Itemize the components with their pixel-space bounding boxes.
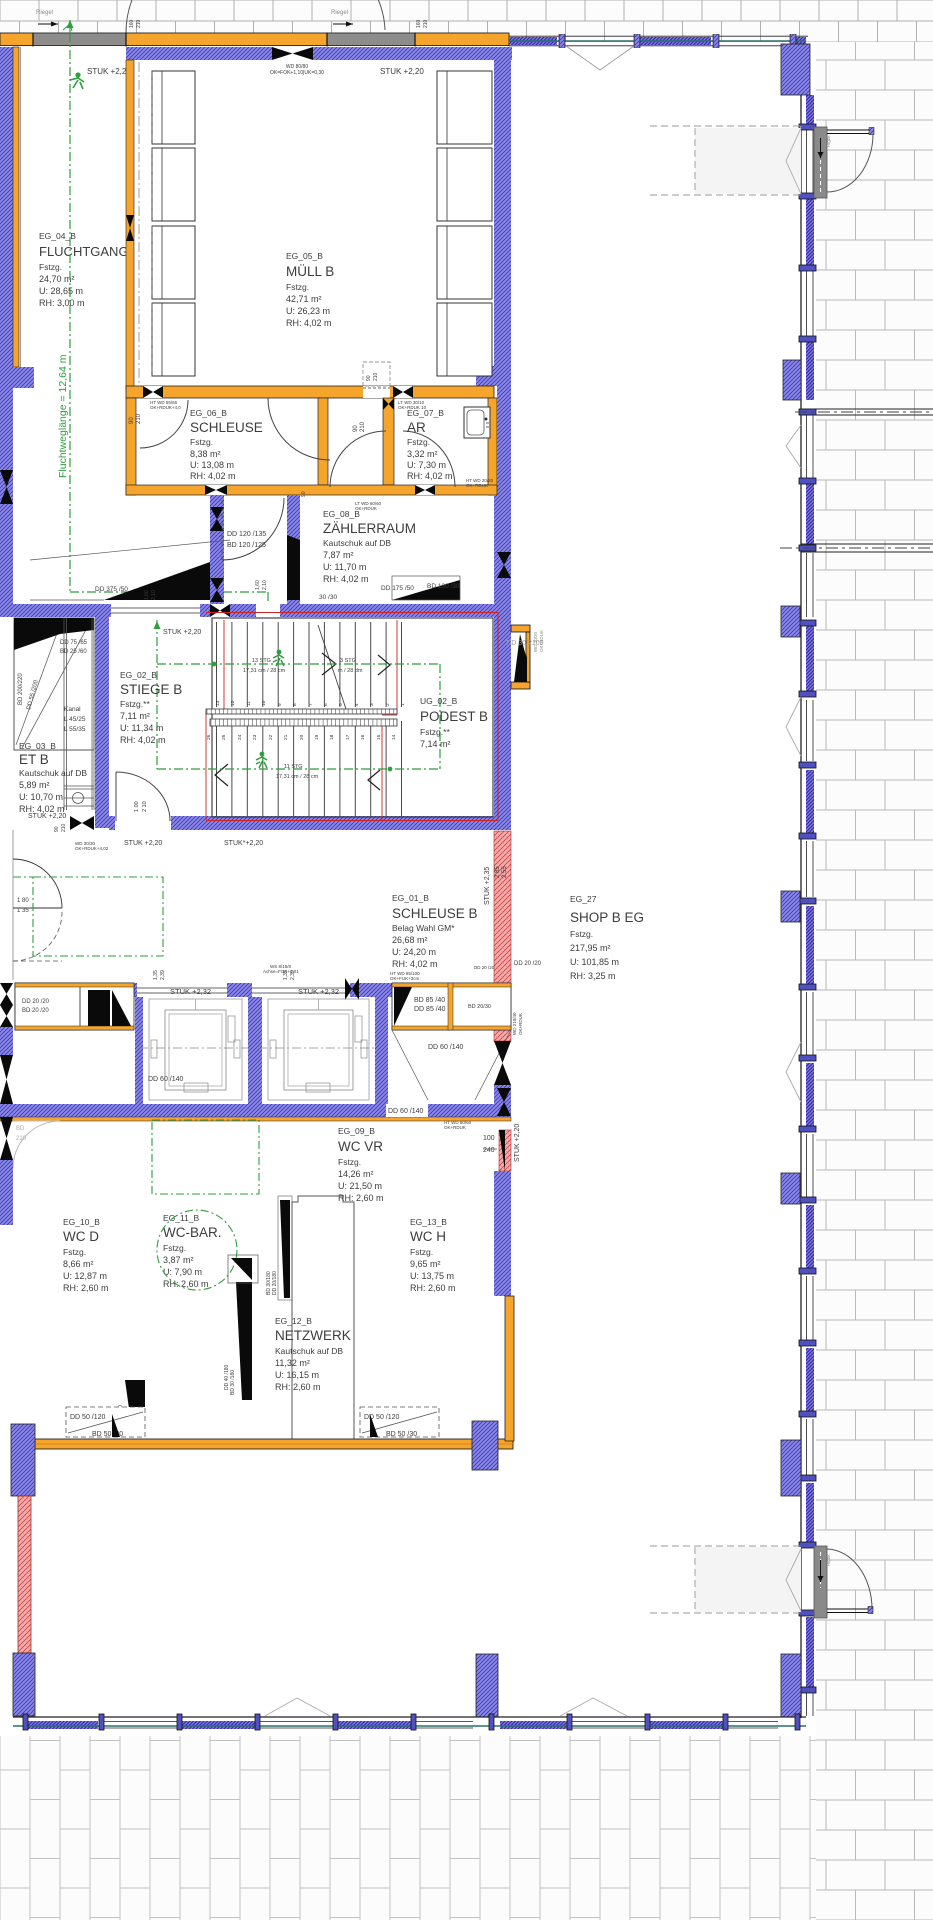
svg-text:Riegel: Riegel [331, 10, 348, 16]
svg-text:Kautschuk auf DB: Kautschuk auf DB [19, 768, 87, 778]
svg-text:WD 30/20: WD 30/20 [533, 631, 538, 652]
svg-text:210: 210 [373, 372, 379, 381]
svg-text:WD 210/40: WD 210/40 [512, 1012, 517, 1035]
svg-text:SHOP B EG: SHOP B EG [570, 910, 644, 925]
svg-text:RH: 4,02 m: RH: 4,02 m [407, 471, 453, 481]
svg-text:U: 24,20 m: U: 24,20 m [392, 947, 436, 957]
svg-text:7,11 m²: 7,11 m² [120, 711, 150, 721]
svg-text:RH: 4,02 m: RH: 4,02 m [19, 804, 65, 814]
svg-text:WC-BAR.: WC-BAR. [163, 1225, 222, 1240]
svg-text:1 80: 1 80 [17, 898, 29, 904]
svg-text:U: 101,85 m: U: 101,85 m [570, 957, 619, 967]
svg-text:17,31 cm / 28 cm: 17,31 cm / 28 cm [243, 668, 286, 674]
svg-text:210: 210 [16, 1136, 27, 1142]
svg-text:11: 11 [246, 701, 252, 706]
svg-text:RH: 4,02 m: RH: 4,02 m [323, 574, 369, 584]
svg-text:2 85: 2 85 [495, 866, 501, 878]
svg-text:DD 50 /120: DD 50 /120 [70, 1414, 106, 1421]
svg-text:RH: 4,02 m: RH: 4,02 m [286, 318, 332, 328]
svg-text:STUK +2,20: STUK +2,20 [163, 629, 201, 636]
svg-text:Kautschuk auf DB: Kautschuk auf DB [323, 538, 391, 548]
svg-text:BD 20 /20: BD 20 /20 [22, 1008, 49, 1014]
svg-text:2 10: 2 10 [142, 801, 148, 812]
svg-text:12: 12 [230, 700, 236, 706]
svg-text:DD 120 /135: DD 120 /135 [227, 531, 266, 538]
svg-text:26,68 m²: 26,68 m² [392, 935, 428, 945]
svg-text:WC D: WC D [63, 1229, 99, 1244]
svg-text:RH: 2,60 m: RH: 2,60 m [410, 1283, 456, 1293]
svg-text:U: 11,34 m: U: 11,34 m [120, 723, 163, 733]
svg-text:Fstzg.**: Fstzg.** [120, 699, 150, 709]
svg-text:14,26 m²: 14,26 m² [338, 1169, 374, 1179]
svg-text:210: 210 [136, 19, 142, 28]
svg-text:100: 100 [483, 1135, 495, 1142]
svg-text:18: 18 [329, 734, 335, 740]
svg-text:90: 90 [54, 826, 60, 832]
svg-text:U: 21,50 m: U: 21,50 m [338, 1181, 382, 1191]
svg-text:13: 13 [215, 700, 221, 706]
svg-text:U: 11,70 m: U: 11,70 m [323, 562, 366, 572]
svg-text:EG_27: EG_27 [570, 894, 597, 904]
svg-text:Fstzg.: Fstzg. [39, 262, 62, 272]
svg-text:PODEST B: PODEST B [420, 709, 488, 724]
svg-text:1 35: 1 35 [17, 908, 29, 914]
svg-text:22: 22 [268, 734, 274, 740]
svg-text:OK+RDUK+4,02: OK+RDUK+4,02 [75, 846, 109, 851]
svg-text:DD 20 /20: DD 20 /20 [514, 961, 542, 967]
svg-text:Fstzg.: Fstzg. [163, 1243, 186, 1253]
svg-text:24: 24 [237, 734, 243, 740]
svg-text:210: 210 [360, 421, 366, 432]
svg-text:23: 23 [252, 734, 258, 740]
svg-text:EG_13_B: EG_13_B [410, 1217, 447, 1227]
svg-text:U: 13,75 m: U: 13,75 m [410, 1271, 454, 1281]
svg-text:STUK +2,20: STUK +2,20 [380, 67, 424, 76]
svg-text:90: 90 [301, 491, 307, 497]
svg-text:3: 3 [369, 703, 375, 706]
svg-text:BD 20/30: BD 20/30 [468, 1004, 491, 1010]
svg-text:14: 14 [391, 734, 397, 740]
svg-text:EG_05_B: EG_05_B [286, 251, 323, 261]
svg-text:SCHLEUSE B: SCHLEUSE B [392, 906, 478, 921]
svg-text:STUK +2,20: STUK +2,20 [28, 813, 66, 820]
svg-text:Belag Wahl GM*: Belag Wahl GM* [392, 923, 455, 933]
svg-text:OK+RDUK: OK+RDUK [539, 630, 544, 652]
svg-text:8: 8 [292, 703, 298, 706]
svg-text:5: 5 [338, 703, 344, 706]
svg-text:Kanal: Kanal [64, 706, 81, 713]
svg-text:2,10: 2,10 [262, 580, 268, 590]
svg-text:160: 160 [129, 19, 135, 28]
svg-text:17,31 cm / 28 cm: 17,31 cm / 28 cm [276, 774, 319, 780]
svg-text:WC VR: WC VR [338, 1139, 383, 1154]
svg-text:EG_02_B: EG_02_B [120, 670, 157, 680]
svg-text:1: 1 [400, 703, 406, 706]
svg-text:Fstzg.: Fstzg. [286, 282, 309, 292]
svg-text:RH: 3,00 m: RH: 3,00 m [39, 298, 85, 308]
svg-text:1,60: 1,60 [255, 580, 261, 590]
svg-text:7: 7 [308, 703, 314, 706]
svg-text:BD: BD [16, 1126, 25, 1132]
svg-text:1 00: 1 00 [134, 801, 140, 812]
svg-text:Kautschuk auf DB: Kautschuk auf DB [275, 1346, 343, 1356]
svg-text:RH: 4,02 m: RH: 4,02 m [190, 471, 236, 481]
svg-text:DD 375 /50: DD 375 /50 [95, 586, 128, 593]
svg-text:2,39: 2,39 [160, 970, 166, 980]
svg-text:Fstzg.**: Fstzg.** [420, 727, 450, 737]
svg-text:SCHLEUSE: SCHLEUSE [190, 420, 263, 435]
svg-text:OK+RDUK: OK+RDUK [518, 1013, 523, 1035]
svg-text:NETZWERK: NETZWERK [275, 1328, 351, 1343]
svg-text:90: 90 [129, 417, 135, 424]
svg-text:5,89 m²: 5,89 m² [19, 780, 50, 790]
svg-text:210: 210 [61, 823, 67, 832]
svg-text:RH: 3,25 m: RH: 3,25 m [570, 971, 616, 981]
svg-text:UG_02_B: UG_02_B [420, 696, 458, 706]
svg-text:STIEGE B: STIEGE B [120, 682, 182, 697]
svg-text:U: 16,15 m: U: 16,15 m [275, 1370, 319, 1380]
svg-text:26: 26 [206, 734, 212, 740]
svg-text:OK+FUK+3cm: OK+FUK+3cm [390, 976, 420, 981]
svg-text:BD 120 /125: BD 120 /125 [227, 542, 266, 549]
svg-text:90: 90 [366, 375, 372, 381]
svg-text:21: 21 [283, 734, 289, 740]
svg-text:90: 90 [353, 425, 359, 432]
svg-text:17: 17 [345, 734, 351, 740]
svg-text:BD 30/180: BD 30/180 [266, 1271, 272, 1295]
svg-text:240: 240 [483, 1147, 495, 1154]
svg-text:EG_04_B: EG_04_B [39, 231, 76, 241]
svg-text:Riegel: Riegel [36, 10, 53, 16]
svg-text:20: 20 [299, 734, 305, 740]
svg-text:BD 130 /30: BD 130 /30 [427, 583, 460, 590]
svg-text:DD 20 /20: DD 20 /20 [474, 965, 495, 970]
svg-text:2,10: 2,10 [151, 590, 157, 600]
svg-text:L 45/25: L 45/25 [64, 716, 86, 723]
svg-text:Fluchtweglänge = 12,64 m: Fluchtweglänge = 12,64 m [57, 354, 69, 478]
svg-text:1,60: 1,60 [144, 590, 150, 600]
svg-text:FLUCHTGANG: FLUCHTGANG [39, 244, 129, 259]
svg-text:STUK +2,32: STUK +2,32 [170, 987, 211, 996]
svg-text:2 55: 2 55 [502, 866, 508, 878]
svg-text:U: 12,87 m: U: 12,87 m [63, 1271, 107, 1281]
svg-text:RH: 2,60 m: RH: 2,60 m [275, 1382, 321, 1392]
svg-text:OK+RDUK: OK+RDUK [466, 483, 488, 488]
svg-text:OK+RDUK: OK+RDUK [355, 506, 377, 511]
svg-text:STUK +2,35: STUK +2,35 [484, 867, 491, 905]
svg-text:ET B: ET B [19, 752, 49, 767]
svg-text:U: 7,30 m: U: 7,30 m [407, 460, 446, 470]
svg-text:RH: 2,60 m: RH: 2,60 m [163, 1279, 209, 1289]
svg-text:BD 50 /30: BD 50 /30 [386, 1431, 417, 1438]
svg-text:10: 10 [261, 700, 267, 706]
svg-text:7,14 m²: 7,14 m² [420, 739, 451, 749]
svg-text:6: 6 [323, 703, 329, 706]
svg-text:BD 200/220: BD 200/220 [18, 673, 24, 705]
svg-text:EG_07_B: EG_07_B [407, 408, 444, 418]
svg-text:U: 7,90 m: U: 7,90 m [163, 1267, 202, 1277]
svg-text:Fstzg.: Fstzg. [410, 1247, 433, 1257]
svg-text:U: 28,65 m: U: 28,65 m [39, 286, 83, 296]
svg-text:L 55/35: L 55/35 [64, 726, 86, 733]
svg-text:16: 16 [360, 734, 366, 740]
svg-text:EG_10_B: EG_10_B [63, 1217, 100, 1227]
svg-text:BD 30 /180: BD 30 /180 [230, 1370, 236, 1395]
svg-text:3,32 m²: 3,32 m² [407, 449, 438, 459]
svg-text:160: 160 [416, 19, 422, 28]
svg-text:19: 19 [314, 734, 320, 740]
svg-text:DD 60 /140: DD 60 /140 [388, 1108, 424, 1115]
svg-text:217,95 m²: 217,95 m² [570, 943, 611, 953]
svg-text:MÜLL B: MÜLL B [286, 264, 334, 279]
svg-text:RH: 2,60 m: RH: 2,60 m [63, 1283, 109, 1293]
svg-text:STUK +2,20: STUK +2,20 [514, 1124, 521, 1162]
svg-text:DD 85 /40: DD 85 /40 [414, 1006, 446, 1013]
svg-text:9,65 m²: 9,65 m² [410, 1259, 441, 1269]
svg-text:EG_06_B: EG_06_B [190, 408, 227, 418]
svg-text:RH: 4,02 m: RH: 4,02 m [120, 735, 166, 745]
svg-text:EG_01_B: EG_01_B [392, 893, 429, 903]
svg-text:STUK +2,20: STUK +2,20 [87, 67, 131, 76]
svg-text:4: 4 [354, 703, 360, 706]
svg-text:1,35: 1,35 [153, 970, 159, 980]
svg-text:DD 60 /140: DD 60 /140 [148, 1076, 184, 1083]
svg-text:2: 2 [385, 703, 391, 706]
svg-text:WC H: WC H [410, 1229, 446, 1244]
svg-text:Fstzg.: Fstzg. [63, 1247, 86, 1257]
svg-text:42,71 m²: 42,71 m² [286, 294, 322, 304]
svg-text:8,38 m²: 8,38 m² [190, 449, 221, 459]
svg-text:EG_12_B: EG_12_B [275, 1316, 312, 1326]
svg-text:Fstzg.: Fstzg. [190, 437, 213, 447]
svg-text:210: 210 [423, 19, 429, 28]
svg-text:STUK*+2,20: STUK*+2,20 [224, 840, 263, 847]
svg-text:DD 40 /180: DD 40 /180 [224, 1364, 230, 1390]
svg-text:OK+RDUK+4,0: OK+RDUK+4,0 [150, 405, 181, 410]
svg-text:OK+RDUK: OK+RDUK [444, 1125, 466, 1130]
svg-text:DD 20/180: DD 20/180 [272, 1271, 278, 1295]
svg-text:Achse=FOK+1,01: Achse=FOK+1,01 [263, 969, 299, 974]
svg-text:STUK +2,20: STUK +2,20 [124, 840, 162, 847]
svg-text:U: 13,08 m: U: 13,08 m [190, 460, 234, 470]
svg-text:DD 20 /20: DD 20 /20 [22, 999, 50, 1005]
svg-text:m / 28 dm: m / 28 dm [338, 668, 363, 674]
svg-text:DD 50 /120: DD 50 /120 [364, 1414, 400, 1421]
svg-text:24,70 m²: 24,70 m² [39, 274, 75, 284]
svg-text:AR: AR [407, 420, 426, 435]
svg-text:DD 60 /140: DD 60 /140 [428, 1044, 464, 1051]
svg-text:EG_03_B: EG_03_B [19, 741, 56, 751]
svg-text:8,66 m²: 8,66 m² [63, 1259, 94, 1269]
svg-text:ZÄHLERRAUM: ZÄHLERRAUM [323, 521, 416, 536]
svg-text:RH: 4,02 m: RH: 4,02 m [392, 959, 438, 969]
svg-text:7,87 m²: 7,87 m² [323, 550, 354, 560]
svg-text:3,87 m²: 3,87 m² [163, 1255, 194, 1265]
svg-text:DD 175 /50: DD 175 /50 [381, 585, 414, 592]
svg-text:EG_09_B: EG_09_B [338, 1126, 375, 1136]
svg-text:30 /30: 30 /30 [319, 594, 337, 601]
svg-text:Rigbk: Rigbk [826, 135, 831, 147]
svg-text:25: 25 [221, 734, 227, 740]
svg-text:3 STG: 3 STG [340, 658, 356, 664]
svg-text:STUK +2,32: STUK +2,32 [298, 987, 339, 996]
svg-text:BD 85 /40: BD 85 /40 [414, 997, 445, 1004]
svg-text:210: 210 [136, 413, 142, 424]
svg-text:OK=FOK+1,10|UK=0,30: OK=FOK+1,10|UK=0,30 [270, 70, 324, 76]
svg-text:9: 9 [277, 703, 283, 706]
svg-text:Fstzg.: Fstzg. [407, 437, 430, 447]
svg-text:Fstzg.: Fstzg. [338, 1157, 361, 1167]
svg-text:15: 15 [376, 734, 382, 740]
svg-text:U: 26,23 m: U: 26,23 m [286, 306, 330, 316]
svg-text:13 STG: 13 STG [252, 658, 271, 664]
svg-text:Fstzg.: Fstzg. [570, 929, 593, 939]
svg-text:U: 10,70 m: U: 10,70 m [19, 792, 63, 802]
svg-text:Rigbk: Rigbk [826, 1554, 831, 1566]
